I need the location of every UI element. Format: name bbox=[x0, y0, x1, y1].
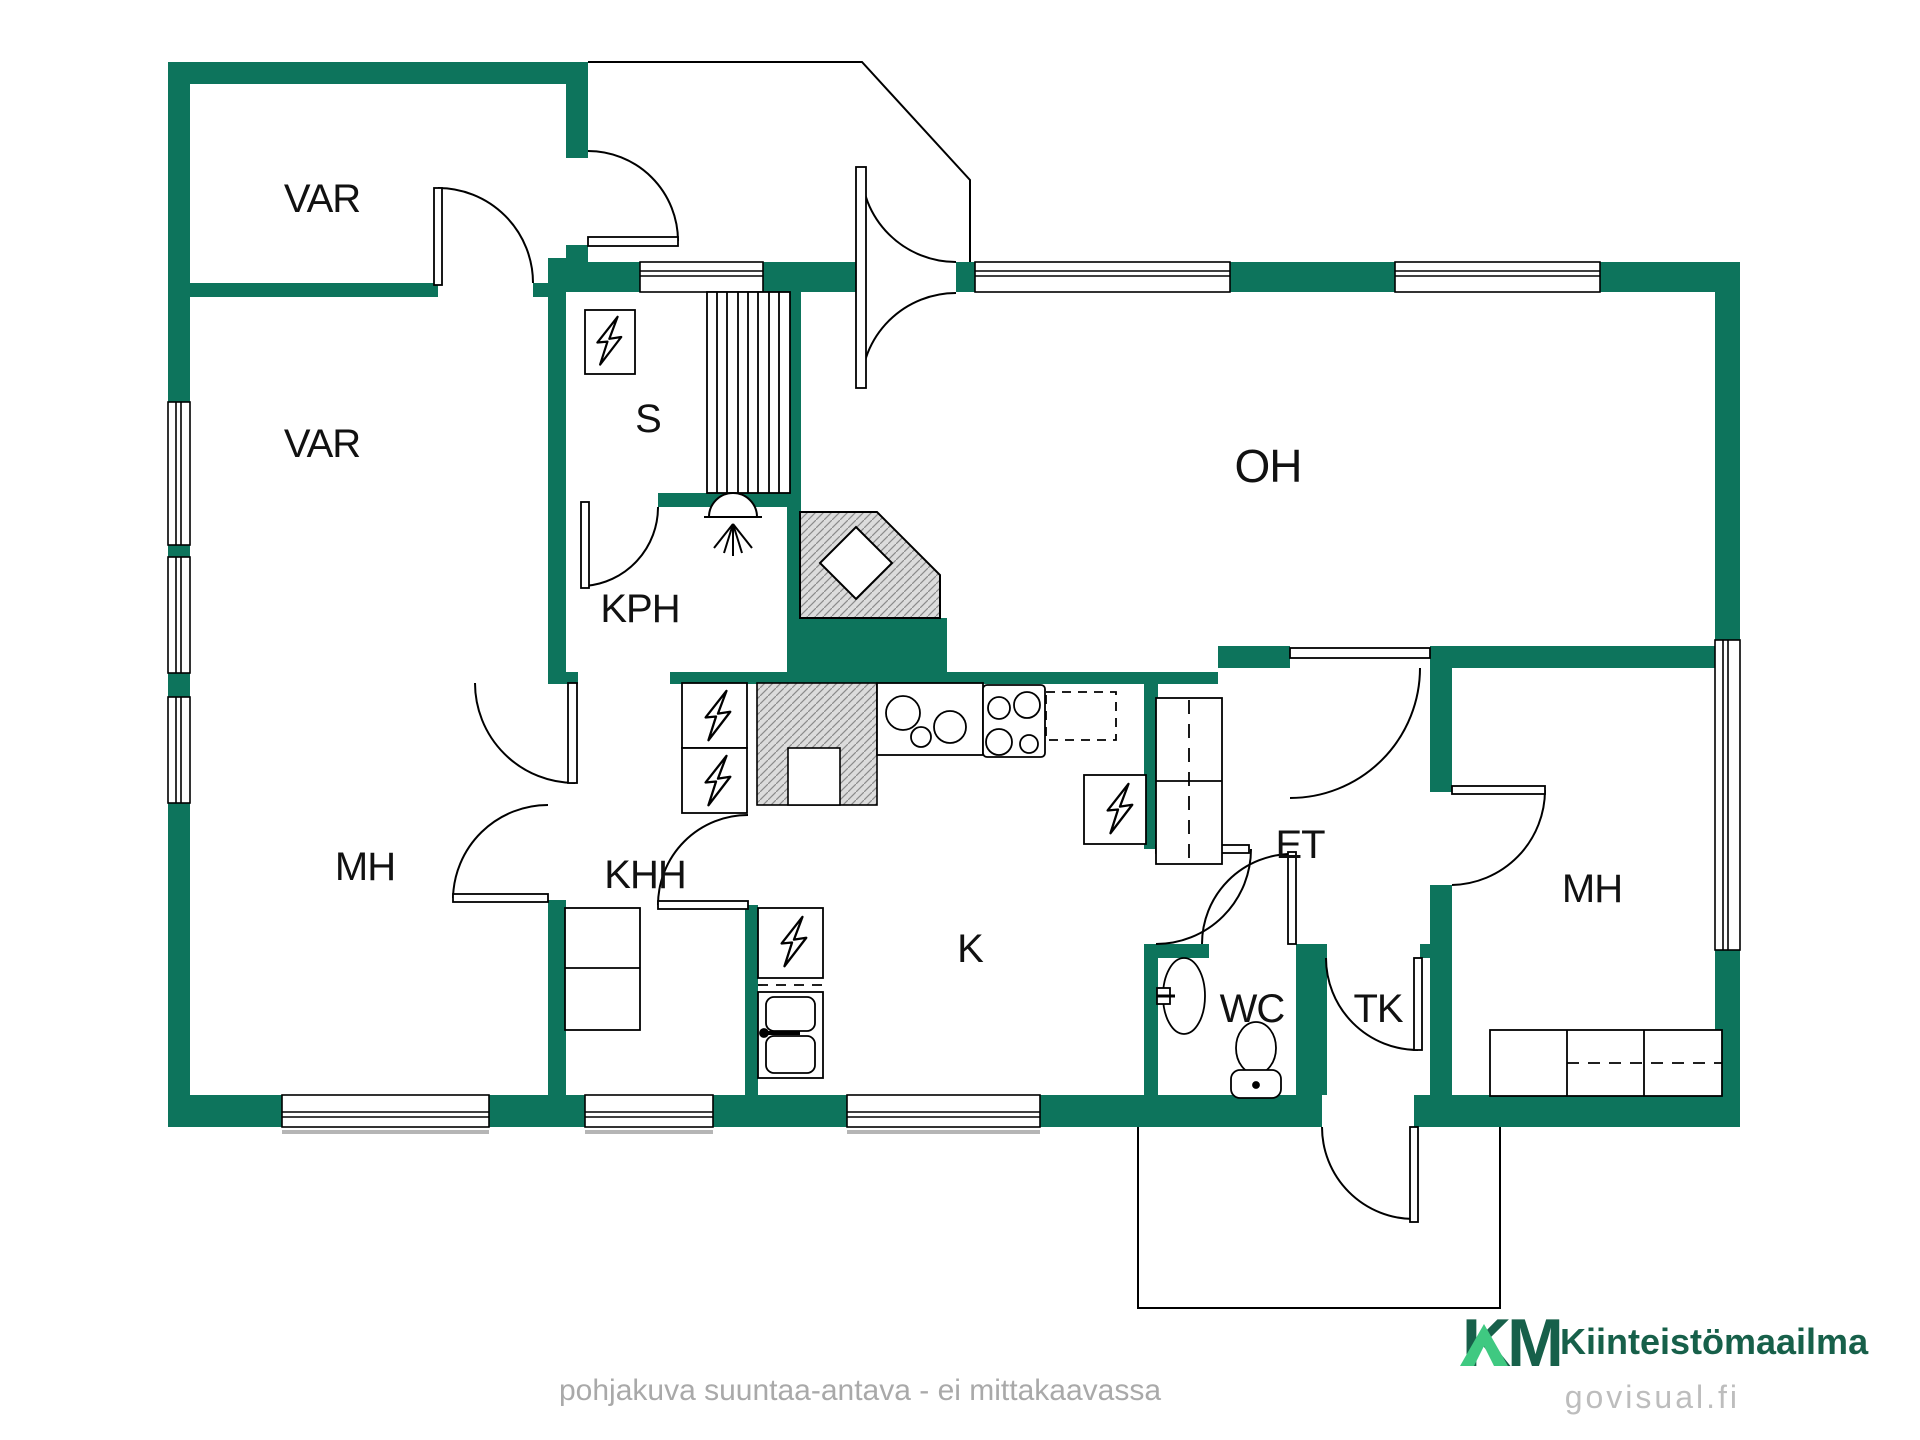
kitchen-sink-icon bbox=[877, 683, 983, 755]
window bbox=[168, 557, 190, 673]
shower-icon bbox=[704, 493, 762, 556]
room-label-kph: KPH bbox=[600, 587, 679, 631]
window bbox=[282, 1095, 489, 1127]
footer-disclaimer: pohjakuva suuntaa-antava - ei mittakaava… bbox=[559, 1374, 1161, 1407]
freezer-icon bbox=[682, 748, 747, 813]
entrance-porch-outline bbox=[588, 62, 970, 262]
window bbox=[168, 697, 190, 803]
fridge-icon bbox=[682, 683, 747, 748]
door-threshold bbox=[1290, 648, 1430, 658]
window bbox=[975, 262, 1230, 292]
door-leaf bbox=[568, 683, 577, 783]
toilet-icon bbox=[1231, 1022, 1281, 1098]
kitchen-chimney-hatch bbox=[757, 683, 877, 805]
room-label-var-top: VAR bbox=[284, 177, 360, 221]
door-arc bbox=[588, 151, 678, 241]
door-leaf bbox=[588, 237, 678, 246]
room-label-oh: OH bbox=[1235, 440, 1302, 492]
fixtures bbox=[565, 292, 1722, 1098]
door-leaf bbox=[1452, 786, 1545, 794]
room-label-khh: KHH bbox=[604, 853, 685, 897]
wall-chimney bbox=[800, 618, 947, 672]
wall bbox=[566, 62, 588, 158]
room-label-sauna: S bbox=[635, 397, 661, 441]
room-label-mh-left: MH bbox=[335, 845, 395, 889]
stove-icon bbox=[983, 685, 1045, 757]
door-leaf bbox=[434, 188, 442, 285]
wall bbox=[548, 258, 566, 672]
dishwasher-icon bbox=[1084, 775, 1146, 844]
window bbox=[1715, 640, 1740, 950]
sauna-heater-icon bbox=[585, 310, 635, 374]
wall bbox=[168, 62, 588, 84]
wall bbox=[745, 905, 758, 1095]
wall bbox=[1430, 646, 1452, 792]
sauna-bench-icon bbox=[707, 292, 790, 493]
wall bbox=[1430, 885, 1452, 1095]
wall bbox=[1040, 1095, 1322, 1127]
window bbox=[847, 1095, 1040, 1127]
wall bbox=[1144, 944, 1158, 1095]
door-arc bbox=[861, 293, 956, 388]
wall bbox=[1296, 944, 1327, 1095]
wall bbox=[566, 262, 640, 292]
window bbox=[168, 402, 190, 545]
room-label-et: ET bbox=[1275, 823, 1325, 867]
wall bbox=[1218, 646, 1290, 668]
wall bbox=[1230, 262, 1395, 292]
door-arc bbox=[1452, 790, 1545, 885]
wall bbox=[763, 262, 856, 292]
door-leaf bbox=[856, 167, 866, 388]
wall bbox=[1144, 944, 1209, 958]
window bbox=[585, 1095, 713, 1127]
door-leaf bbox=[658, 901, 748, 909]
window bbox=[1395, 262, 1600, 292]
wall bbox=[713, 1095, 847, 1127]
room-label-mh-right: MH bbox=[1562, 867, 1622, 911]
door-arc bbox=[438, 188, 533, 283]
sink-icon bbox=[1157, 958, 1205, 1034]
brand-name-text: Kiinteistömaailma bbox=[1560, 1321, 1869, 1362]
door-leaf bbox=[1414, 958, 1422, 1050]
door-leaf bbox=[1410, 1127, 1418, 1222]
room-label-wc: WC bbox=[1220, 987, 1285, 1031]
khh-cabinet bbox=[565, 908, 640, 1030]
room-labels: VAR VAR S KPH MH KHH K OH ET WC TK MH bbox=[284, 177, 1622, 1031]
wall bbox=[956, 262, 975, 292]
floor-plan: VAR VAR S KPH MH KHH K OH ET WC TK MH KM… bbox=[0, 0, 1920, 1440]
wall bbox=[489, 1095, 585, 1127]
door-arc bbox=[453, 805, 548, 898]
counter-dashed-outline bbox=[1046, 692, 1116, 740]
brand-logo: KM Kiinteistömaailma govisual.fi bbox=[1460, 1305, 1869, 1415]
door-leaf bbox=[581, 502, 589, 588]
room-label-var-bottom: VAR bbox=[284, 422, 360, 466]
door-arc bbox=[1290, 668, 1420, 798]
room-label-kitchen: K bbox=[957, 927, 984, 971]
utility-sink-icon bbox=[758, 992, 823, 1078]
door-arc bbox=[585, 507, 658, 586]
dresser bbox=[1490, 1030, 1722, 1096]
door-leaf bbox=[453, 894, 548, 902]
back-porch-outline bbox=[1138, 1127, 1500, 1308]
door-arc bbox=[475, 683, 575, 783]
wall bbox=[1414, 1095, 1740, 1127]
window bbox=[640, 262, 763, 292]
wall bbox=[1452, 646, 1715, 668]
room-label-tk: TK bbox=[1353, 987, 1403, 1031]
wall bbox=[168, 1095, 282, 1127]
door-arc bbox=[1322, 1127, 1414, 1219]
walls bbox=[168, 62, 1740, 1127]
floor-plan-page: VAR VAR S KPH MH KHH K OH ET WC TK MH KM… bbox=[0, 0, 1920, 1440]
tall-cabinet bbox=[1156, 698, 1222, 864]
wall bbox=[548, 900, 566, 1095]
washing-machine-icon bbox=[758, 908, 823, 985]
door-arc bbox=[861, 167, 956, 262]
watermark-text: govisual.fi bbox=[1565, 1379, 1740, 1415]
wall bbox=[168, 283, 438, 297]
door-arc bbox=[1202, 854, 1292, 944]
fireplace-icon bbox=[800, 512, 940, 618]
